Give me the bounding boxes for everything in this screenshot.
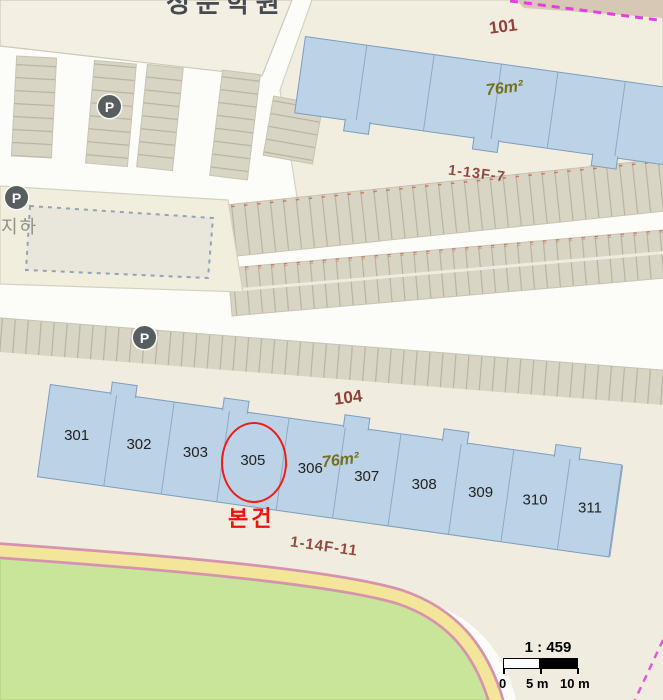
parking-icon: P [133, 326, 156, 349]
unit-306-label: 306 [298, 460, 323, 477]
unit-311-label: 311 [578, 499, 602, 516]
underground-outline-dashed [26, 206, 213, 278]
unit-309-label: 309 [469, 484, 494, 501]
building-101-unit [491, 65, 558, 148]
unit-307-label: 307 [354, 467, 379, 484]
parking-icon: P [5, 186, 28, 209]
scale-tick [503, 668, 505, 674]
scale-tick-labels: 0 5 m 10 m [498, 676, 618, 690]
parking-icon: P [98, 95, 121, 118]
scale-ratio: 1 : 459 [506, 639, 590, 656]
scale-bar: 1 : 459 0 5 m 10 m [498, 639, 618, 690]
parking-icon-letter: P [12, 190, 21, 206]
parking-icon-letter: P [105, 99, 114, 115]
underground-parking-block [0, 186, 243, 292]
unit-310-label: 310 [523, 491, 548, 508]
scale-label-0: 0 [499, 676, 506, 691]
scale-label-10: 10 m [560, 676, 590, 691]
building-101-unit [357, 46, 435, 131]
scale-tick [577, 668, 579, 674]
building-104-number: 104 [333, 386, 364, 409]
scale-bar-white-half [503, 658, 540, 669]
building-101-number: 101 [488, 15, 519, 38]
underground-label: 지하 [1, 213, 38, 239]
scale-label-5: 5 m [526, 676, 548, 691]
unit-301: 301 [38, 385, 117, 485]
scale-tick [540, 668, 542, 674]
map-canvas: { "top_block": { "label": "성문학원" }, "bui… [0, 0, 663, 700]
building-101-unit [295, 37, 367, 121]
building-101-unit [548, 73, 626, 158]
top-block-label: 성문학원 [166, 0, 286, 20]
parking-icon-letter: P [140, 330, 149, 346]
subject-label: 본건 [228, 501, 274, 533]
unit-303-label: 303 [183, 443, 208, 460]
unit-302-label: 302 [127, 435, 152, 452]
scale-bar-black-half [540, 658, 578, 669]
unit-301-label: 301 [65, 427, 90, 444]
subject-circle-marker [221, 422, 287, 503]
unit-308-label: 308 [412, 476, 437, 493]
